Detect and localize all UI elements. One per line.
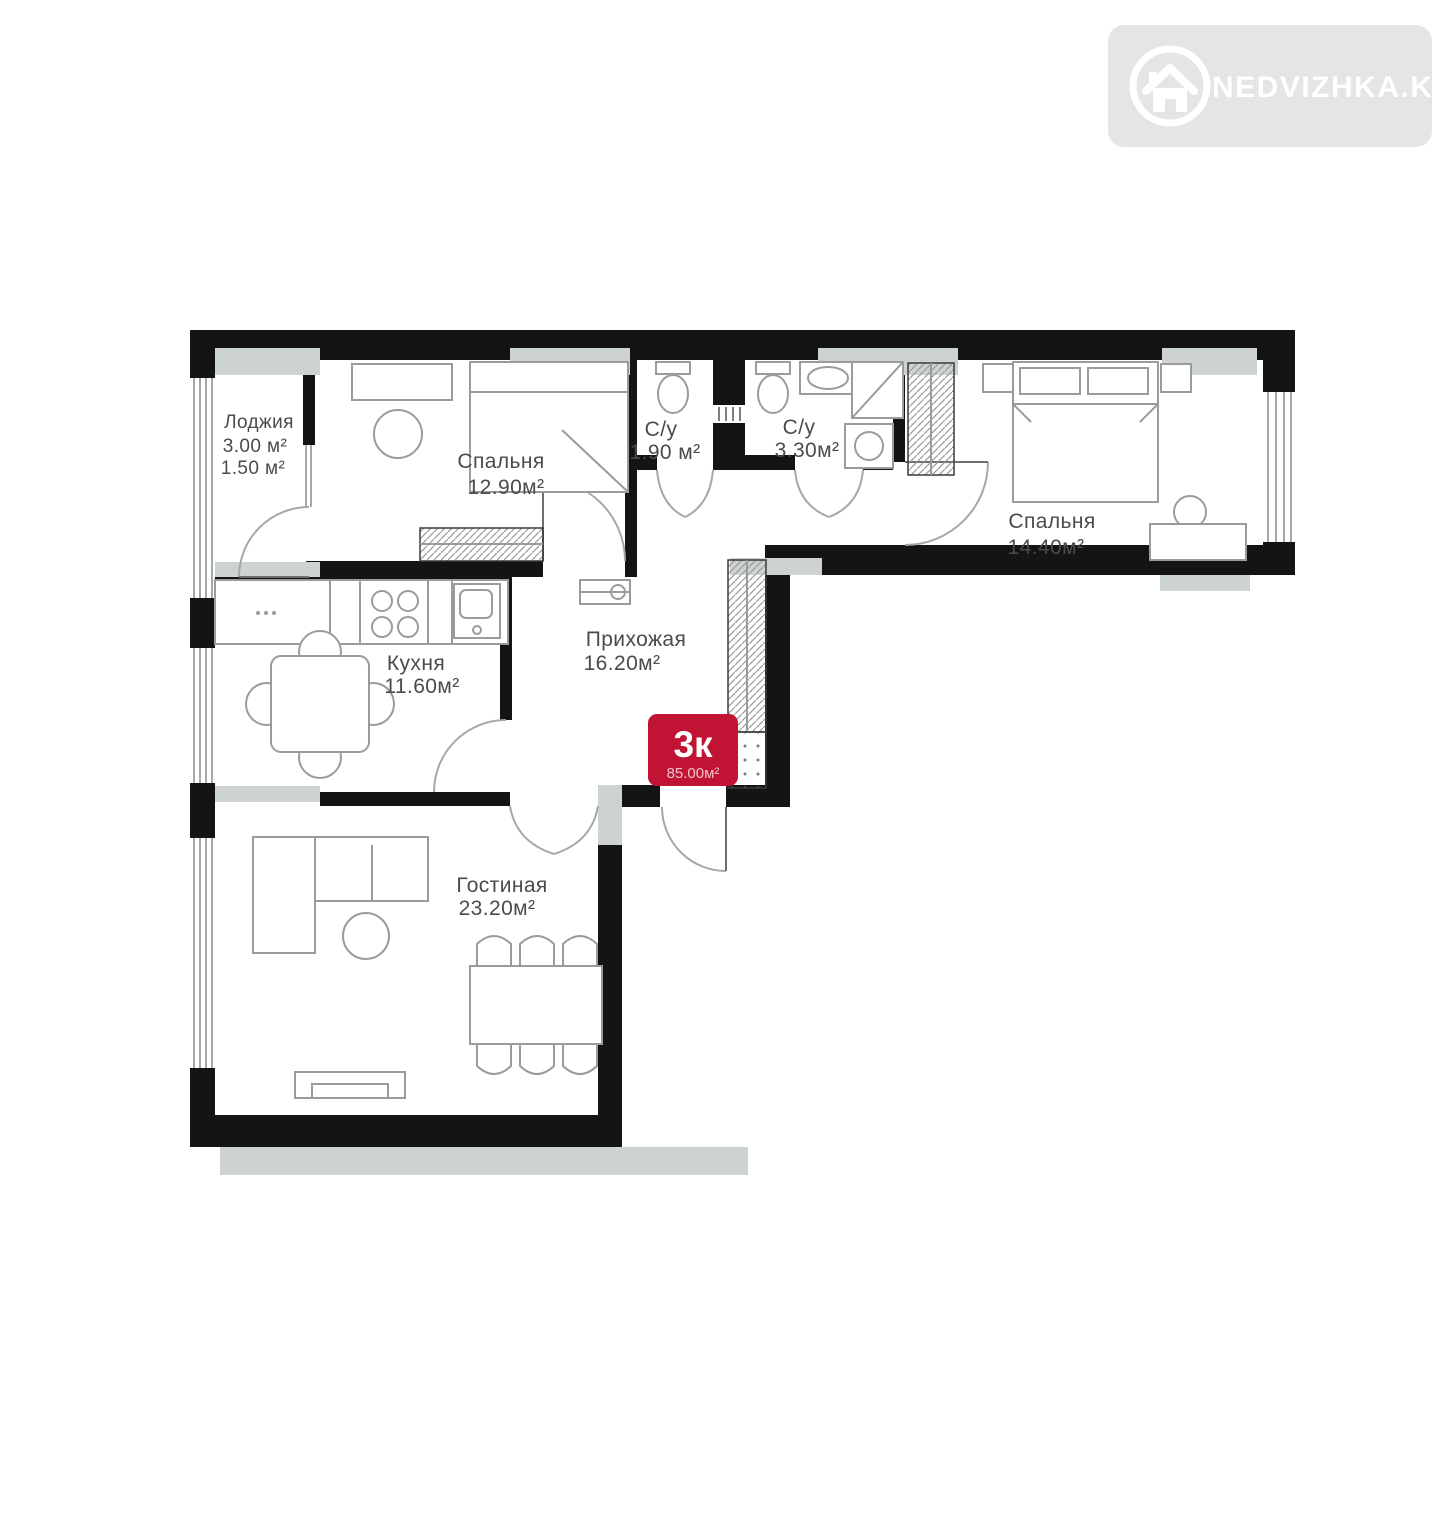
room-name: Прихожая xyxy=(586,628,687,651)
badge-area: 85.00м² xyxy=(667,765,720,782)
room-area: 23.20м² xyxy=(459,897,536,920)
nightstand-symbol xyxy=(983,364,1013,392)
room-area: 1.90 м² xyxy=(630,441,701,464)
room-area: 12.90м² xyxy=(468,476,545,499)
tv-stand-symbol xyxy=(295,1072,405,1098)
bathroom-1-furniture xyxy=(656,362,690,413)
room-label-bathroom-2: С/у 3.30м² xyxy=(775,416,840,462)
room-name: С/у xyxy=(645,418,678,441)
room-label-bedroom-2: Спальня 14.40м² xyxy=(1008,510,1096,559)
sofa-symbol xyxy=(253,837,428,953)
room-label-living-room: Гостиная 23.20м² xyxy=(456,874,547,920)
sink-symbol xyxy=(454,584,500,638)
floor-plan-page: Лоджия 3.00 м² 1.50 м² Спальня 12.90м² С… xyxy=(0,0,1440,1514)
room-label-hallway: Прихожая 16.20м² xyxy=(584,628,687,675)
floor-plan-image: Лоджия 3.00 м² 1.50 м² Спальня 12.90м² С… xyxy=(0,0,1440,1514)
coffee-table-symbol xyxy=(343,913,389,959)
bed-symbol xyxy=(1013,362,1158,502)
room-area: 16.20м² xyxy=(584,652,661,675)
room-label-bathroom-1: С/у 1.90 м² xyxy=(630,418,701,464)
nightstand-symbol xyxy=(1161,364,1191,392)
sink-symbol xyxy=(800,362,856,394)
toilet-symbol xyxy=(756,362,790,413)
desk-symbol xyxy=(352,364,452,400)
room-name: Спальня xyxy=(457,450,544,473)
badge-label: 3к xyxy=(673,724,713,765)
room-name: Гостиная xyxy=(456,874,547,897)
brand-name: NEDVIZHKA.KZ xyxy=(1212,71,1440,104)
chair-symbol xyxy=(374,410,422,458)
desk-symbol xyxy=(1150,524,1246,560)
room-area: 3.30м² xyxy=(775,439,840,462)
room-area: 1.50 м² xyxy=(221,458,285,479)
room-label-loggia: Лоджия 3.00 м² 1.50 м² xyxy=(221,412,294,479)
dining-set-symbol xyxy=(470,936,602,1074)
room-name: Спальня xyxy=(1008,510,1095,533)
room-area: 3.00 м² xyxy=(223,436,287,457)
room-name: Лоджия xyxy=(224,412,294,433)
room-name: С/у xyxy=(783,416,816,439)
room-area: 11.60м² xyxy=(384,675,459,698)
room-area: 14.40м² xyxy=(1008,536,1085,559)
kitchen-furniture xyxy=(215,580,508,778)
radiator-symbol xyxy=(580,580,630,604)
living-room-furniture xyxy=(253,837,602,1098)
brand-watermark: NEDVIZHKA.KZ xyxy=(1108,25,1440,147)
toilet-symbol xyxy=(656,362,690,413)
shower-symbol xyxy=(852,362,903,418)
room-name: Кухня xyxy=(387,652,445,675)
unit-type-badge: 3к 85.00м² xyxy=(648,714,738,786)
washing-machine-symbol xyxy=(845,424,893,468)
kitchen-table-symbol xyxy=(246,631,394,778)
room-label-kitchen: Кухня 11.60м² xyxy=(384,652,459,698)
